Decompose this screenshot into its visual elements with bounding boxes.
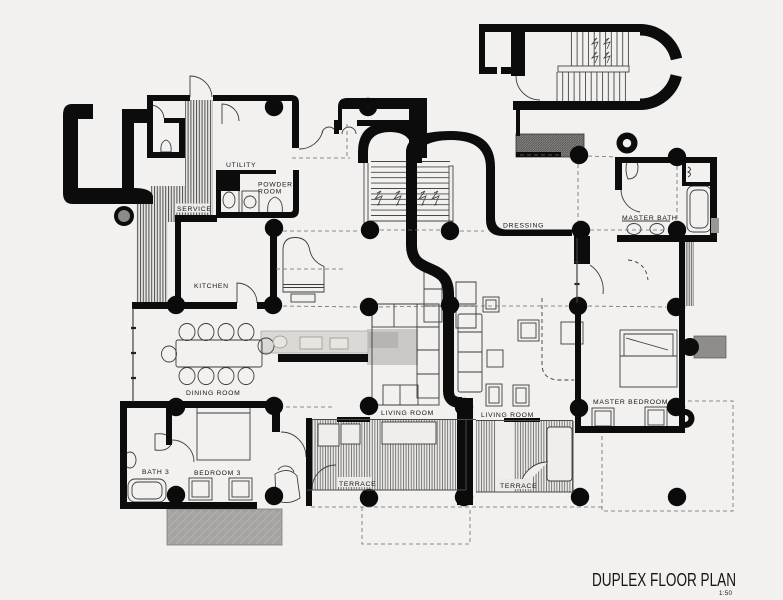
svg-text:DINING ROOM: DINING ROOM	[186, 390, 241, 397]
svg-text:LIVING ROOM: LIVING ROOM	[381, 410, 434, 417]
svg-text:TERRACE: TERRACE	[339, 481, 376, 488]
svg-text:KITCHEN: KITCHEN	[194, 283, 229, 290]
svg-text:BATH 3: BATH 3	[142, 469, 170, 476]
svg-text:SERVICE: SERVICE	[177, 206, 212, 213]
svg-text:POWDER: POWDER	[258, 182, 293, 189]
svg-text:UTILITY: UTILITY	[226, 162, 256, 169]
svg-text:DRESSING: DRESSING	[503, 223, 544, 230]
svg-text:DUPLEX FLOOR PLAN: DUPLEX FLOOR PLAN	[592, 570, 736, 590]
svg-text:BEDROOM 3: BEDROOM 3	[194, 470, 241, 477]
svg-text:ROOM: ROOM	[258, 189, 282, 196]
svg-text:MASTER BATH: MASTER BATH	[622, 215, 678, 222]
svg-text:MASTER BEDROOM: MASTER BEDROOM	[593, 399, 668, 406]
svg-text:LIVING ROOM: LIVING ROOM	[481, 412, 534, 419]
svg-text:1:50: 1:50	[719, 590, 733, 597]
svg-text:TERRACE: TERRACE	[500, 483, 537, 490]
